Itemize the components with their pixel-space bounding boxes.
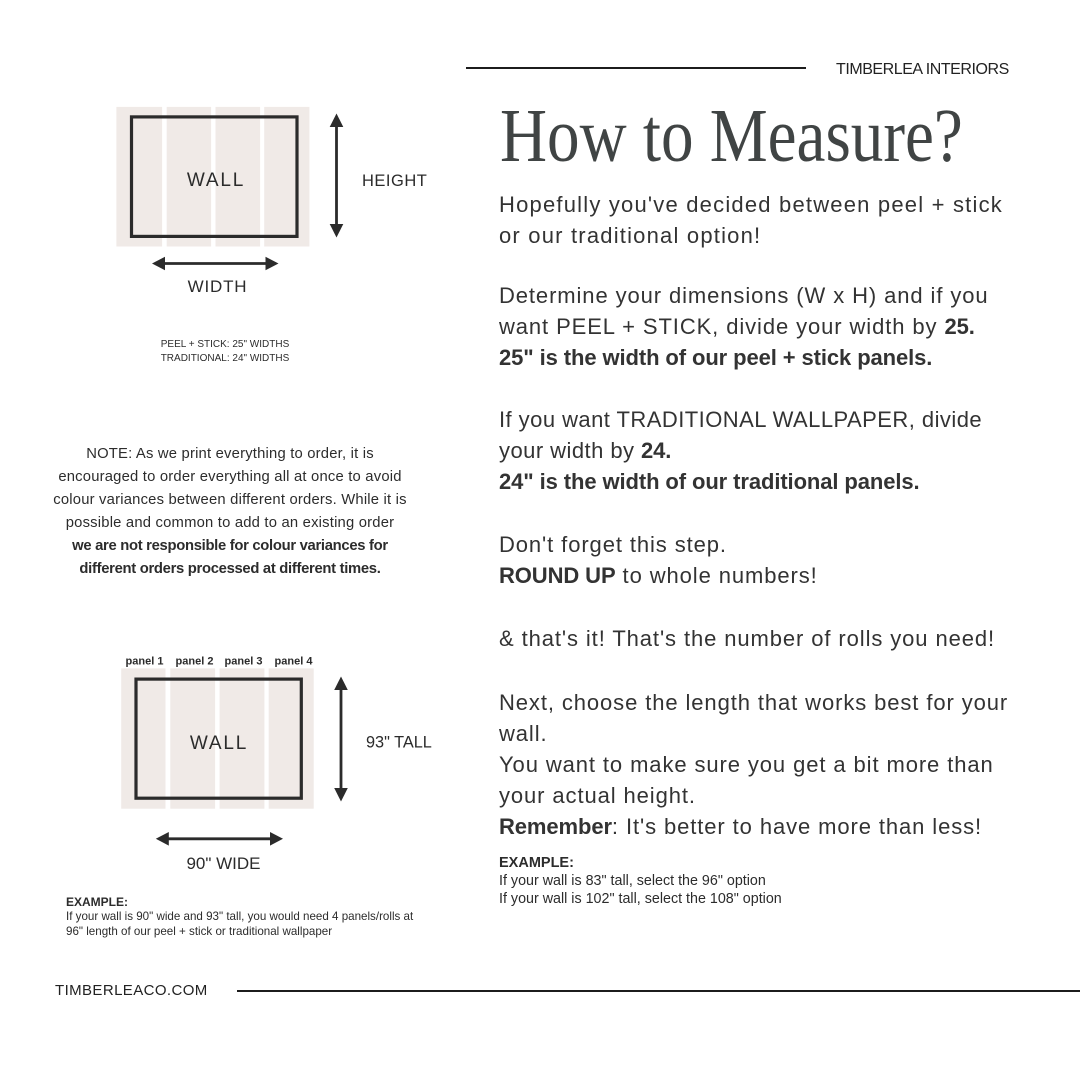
svg-text:HEIGHT: HEIGHT bbox=[362, 172, 427, 190]
svg-text:WALL: WALL bbox=[187, 170, 245, 191]
svg-text:WIDTH: WIDTH bbox=[188, 277, 248, 296]
svg-text:WALL: WALL bbox=[190, 733, 248, 754]
svg-text:panel 1: panel 1 bbox=[126, 656, 164, 668]
svg-text:TRADITIONAL: 24" WIDTHS: TRADITIONAL: 24" WIDTHS bbox=[161, 353, 290, 364]
svg-text:PEEL + STICK: 25" WIDTHS: PEEL + STICK: 25" WIDTHS bbox=[161, 339, 290, 350]
svg-text:panel 4: panel 4 bbox=[275, 656, 314, 668]
svg-text:panel 2: panel 2 bbox=[176, 656, 214, 668]
svg-text:panel 3: panel 3 bbox=[225, 656, 263, 668]
svg-text:93" TALL: 93" TALL bbox=[366, 734, 432, 752]
svg-text:90" WIDE: 90" WIDE bbox=[186, 854, 260, 873]
